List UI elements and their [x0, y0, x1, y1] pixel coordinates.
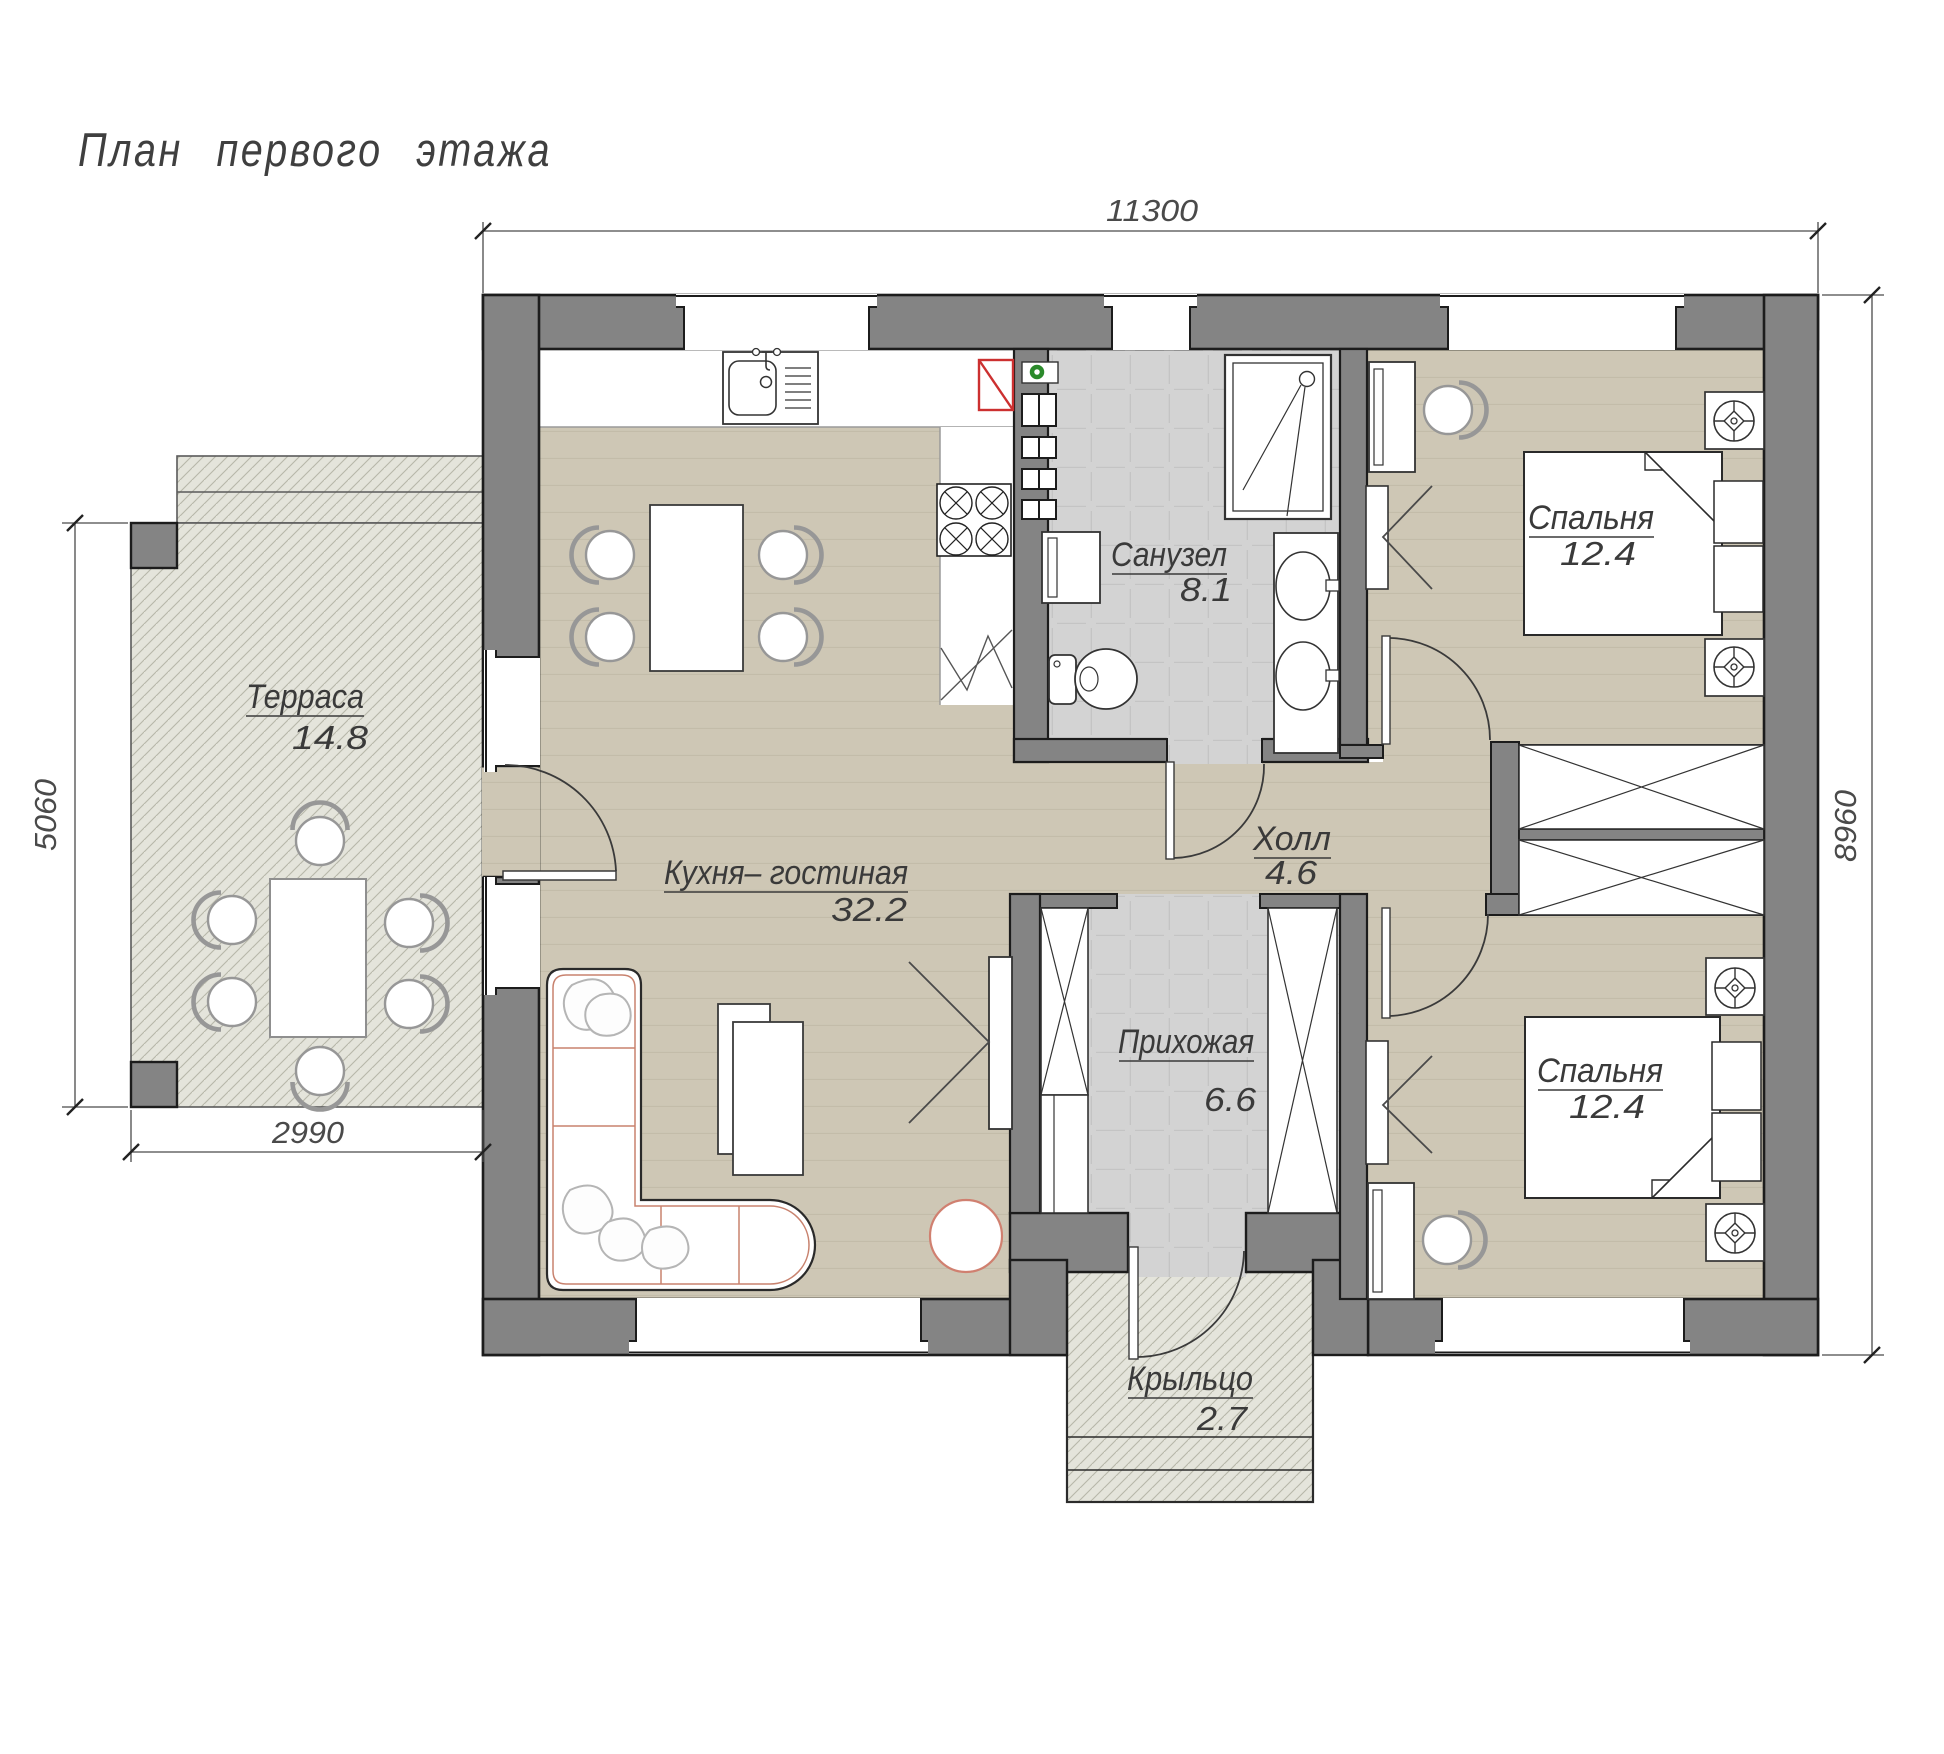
svg-text:2990: 2990 — [271, 1115, 344, 1150]
svg-text:8.1: 8.1 — [1180, 571, 1232, 608]
svg-text:4.6: 4.6 — [1265, 854, 1318, 891]
svg-text:Холл: Холл — [1252, 820, 1331, 858]
svg-text:Крыльцо: Крыльцо — [1127, 1360, 1253, 1398]
svg-text:Кухня– гостиная: Кухня– гостиная — [664, 854, 908, 892]
svg-text:6.6: 6.6 — [1204, 1081, 1257, 1118]
svg-text:Прихожая: Прихожая — [1118, 1023, 1254, 1061]
svg-text:14.8: 14.8 — [292, 719, 369, 756]
svg-text:Спальня: Спальня — [1528, 499, 1654, 537]
svg-text:2.7: 2.7 — [1196, 1400, 1249, 1437]
svg-text:11300: 11300 — [1106, 193, 1198, 228]
svg-text:Спальня: Спальня — [1537, 1052, 1663, 1090]
svg-text:План первого этажа: План первого этажа — [78, 123, 552, 176]
svg-text:8960: 8960 — [1828, 790, 1863, 862]
svg-text:Терраса: Терраса — [246, 678, 364, 716]
svg-text:Санузел: Санузел — [1111, 536, 1227, 574]
svg-text:5060: 5060 — [28, 779, 63, 851]
svg-text:12.4: 12.4 — [1569, 1088, 1645, 1125]
svg-text:32.2: 32.2 — [831, 891, 907, 928]
svg-text:12.4: 12.4 — [1560, 535, 1636, 572]
